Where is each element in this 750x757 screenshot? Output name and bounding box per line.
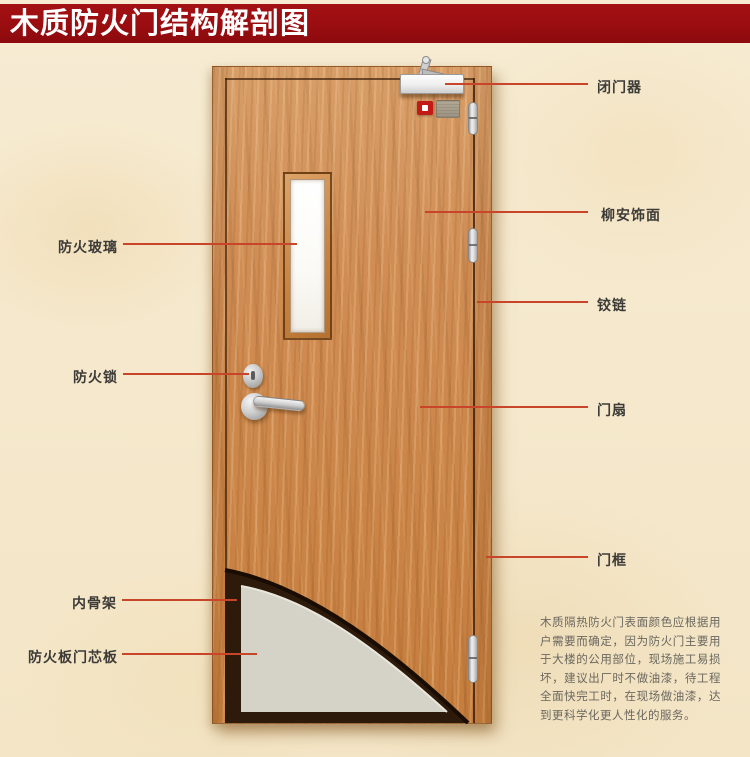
label-hinge: 铰链 — [597, 295, 627, 315]
label-fire-glass: 防火玻璃 — [58, 237, 118, 257]
fire-rating-badge-core — [422, 105, 428, 111]
pointer-line-lauan-veneer — [425, 211, 588, 213]
pointer-line-door-closer — [445, 83, 588, 85]
label-fire-lock: 防火锁 — [73, 367, 118, 387]
pointer-line-inner-skeleton — [122, 599, 237, 601]
door-leaf-gap-right — [473, 78, 475, 723]
door-leaf-gap-left — [225, 78, 227, 723]
fire-rating-badge — [417, 101, 433, 115]
hinge-bottom — [468, 635, 478, 683]
fire-glass-window — [283, 172, 332, 340]
label-door-leaf: 门扇 — [597, 400, 627, 420]
label-inner-skeleton: 内骨架 — [72, 593, 117, 613]
pointer-line-door-frame — [486, 556, 588, 558]
page: 木质防火门结构解剖图 — [0, 0, 750, 757]
title-banner: 木质防火门结构解剖图 — [0, 4, 750, 43]
hinge-top — [468, 102, 478, 135]
fire-lock-cylinder — [243, 364, 263, 388]
label-door-closer: 闭门器 — [597, 77, 642, 97]
pointer-line-hinge — [477, 301, 588, 303]
pointer-line-fire-board-core — [122, 653, 257, 655]
product-description: 木质隔热防火门表面颜色应根据用户需要而确定，因为防火门主要用于大楼的公用部位，现… — [540, 613, 721, 725]
label-lauan-veneer: 柳安饰面 — [601, 205, 661, 225]
label-fire-board-core: 防火板门芯板 — [28, 647, 118, 667]
pointer-line-fire-lock — [123, 373, 249, 375]
fire-door-illustration — [212, 66, 492, 724]
label-plate — [436, 100, 460, 118]
hinge-middle — [468, 228, 478, 263]
page-title: 木质防火门结构解剖图 — [0, 4, 750, 43]
fire-glass-pane — [290, 179, 325, 333]
label-door-frame: 门框 — [597, 550, 627, 570]
pointer-line-door-leaf — [420, 406, 588, 408]
pointer-line-fire-glass — [123, 243, 297, 245]
